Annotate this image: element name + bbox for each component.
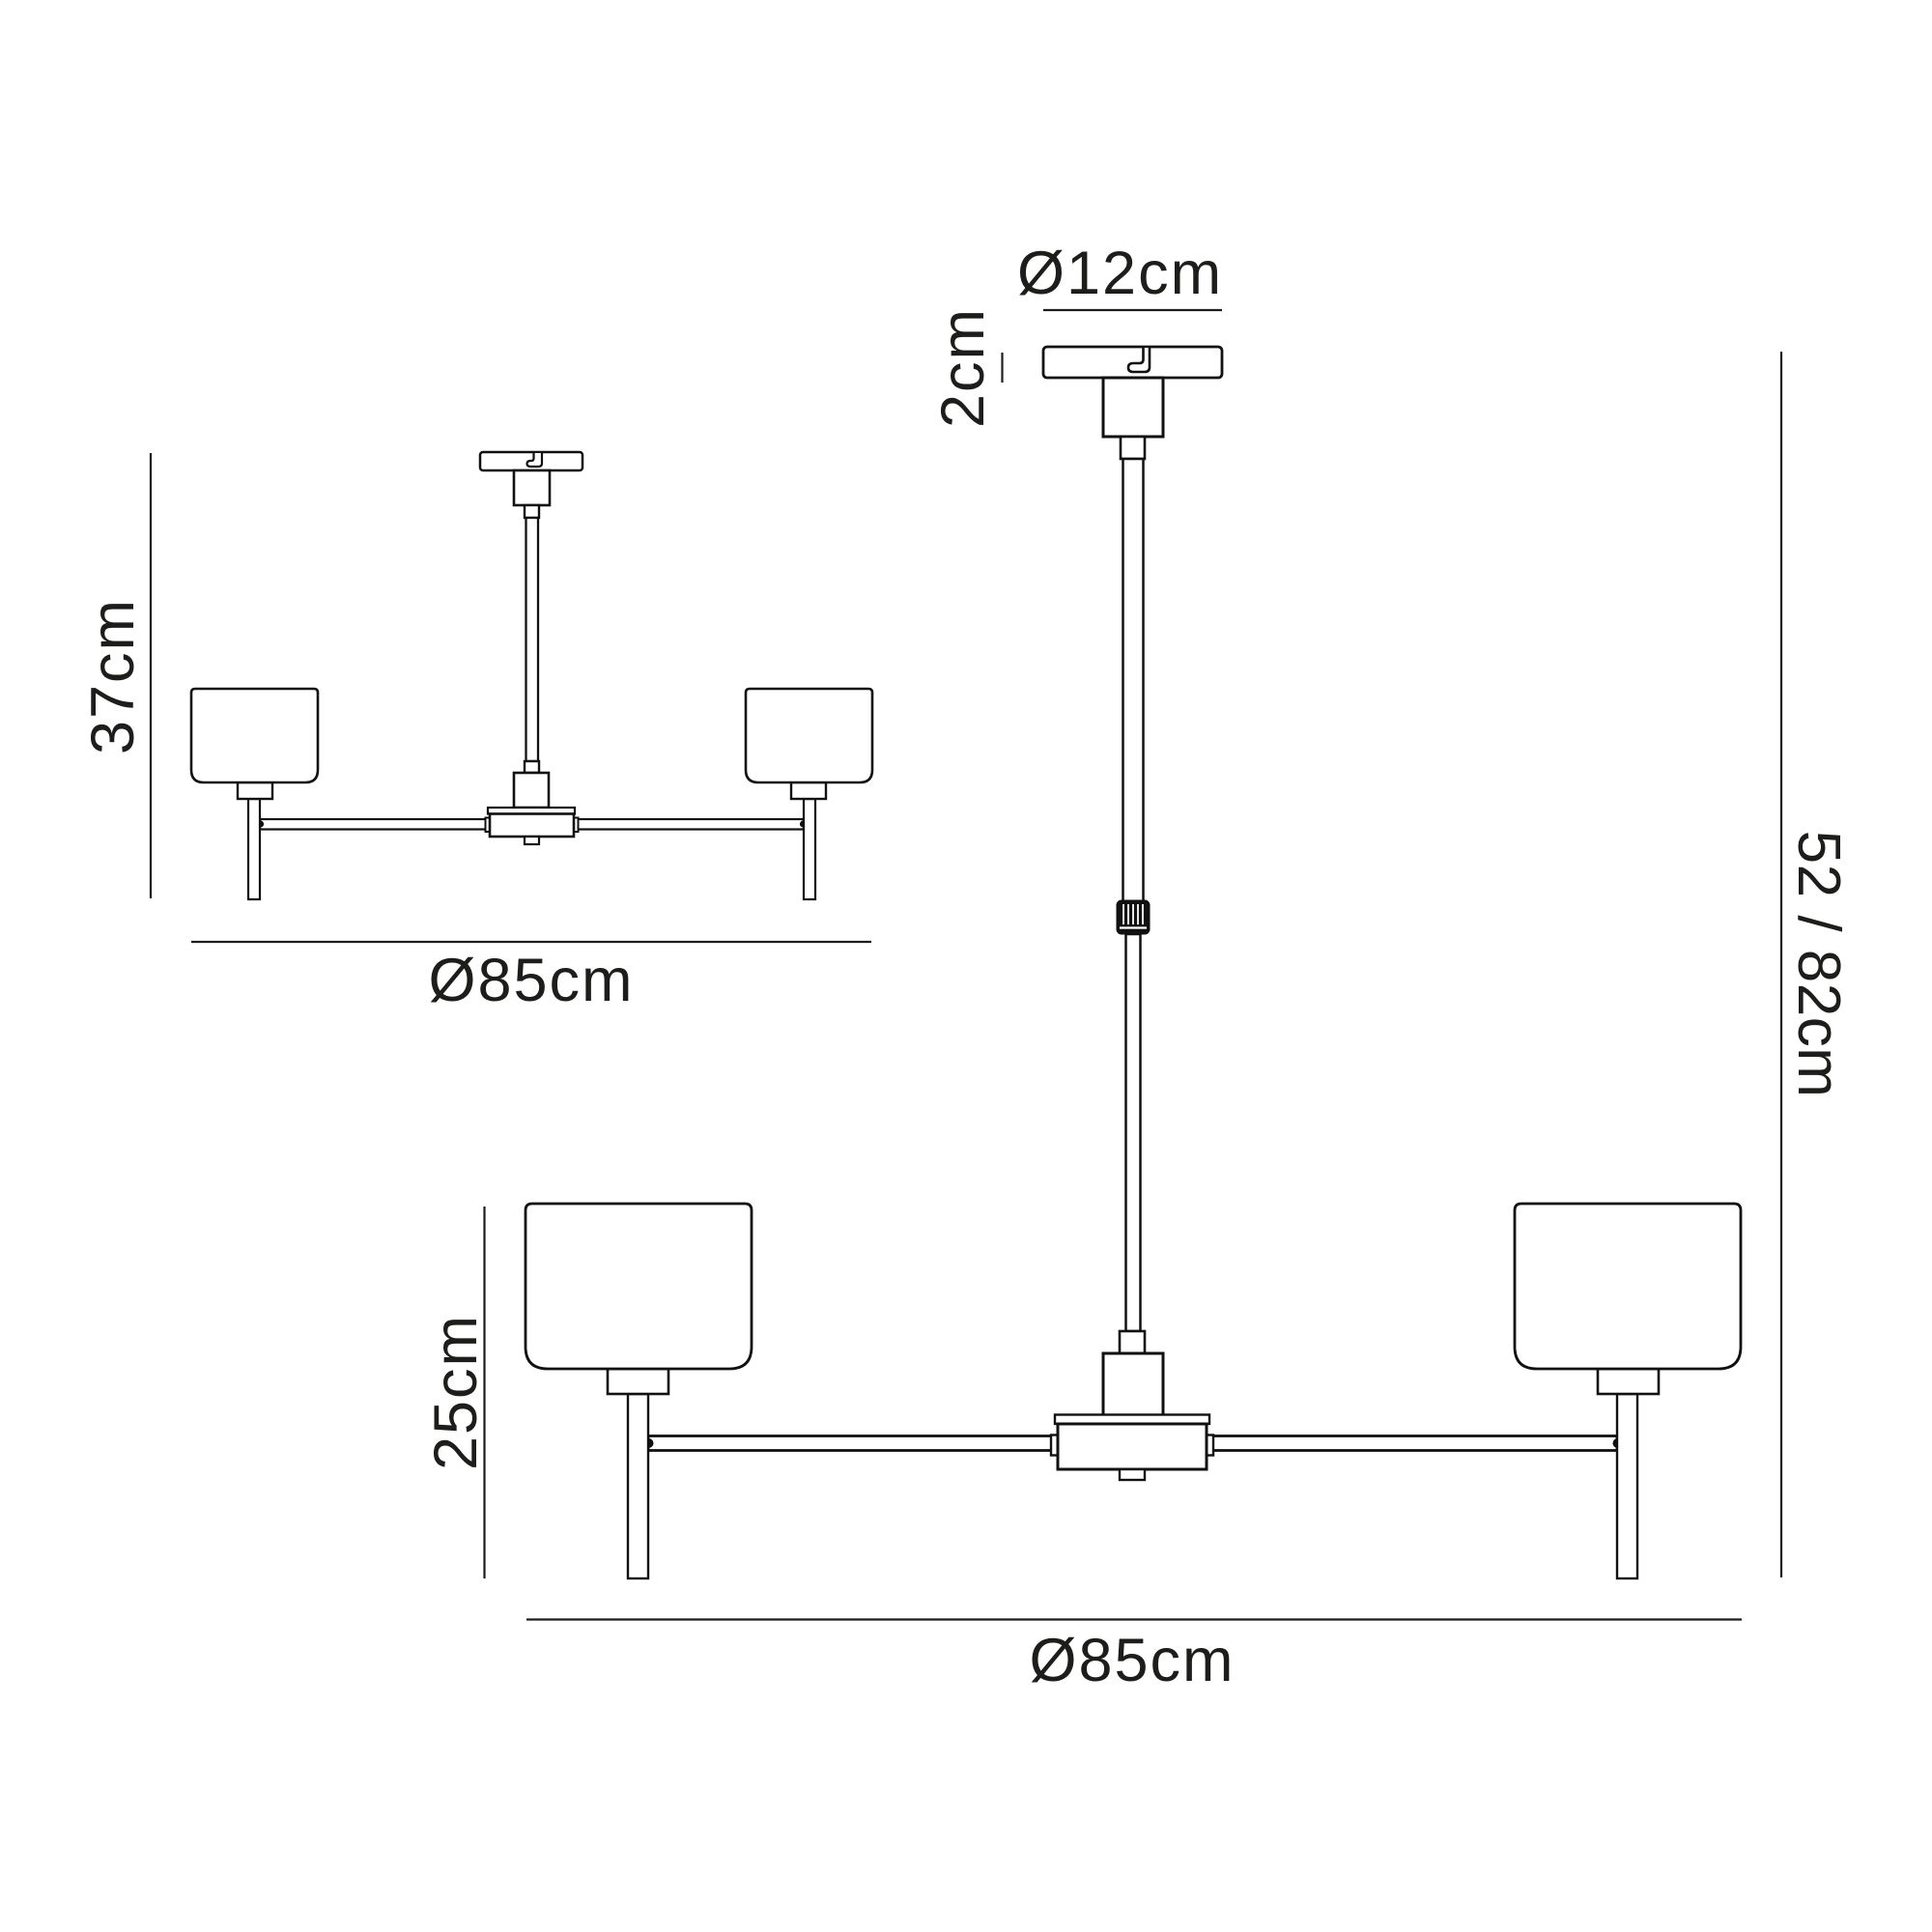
- svg-text:Ø85cm: Ø85cm: [1029, 1627, 1235, 1694]
- svg-text:Ø12cm: Ø12cm: [1017, 240, 1223, 307]
- svg-text:25cm: 25cm: [422, 1314, 490, 1470]
- svg-text:37cm: 37cm: [79, 598, 147, 754]
- svg-text:2cm: 2cm: [929, 307, 997, 428]
- svg-text:Ø85cm: Ø85cm: [428, 947, 634, 1014]
- svg-text:52 / 82cm: 52 / 82cm: [1785, 831, 1852, 1098]
